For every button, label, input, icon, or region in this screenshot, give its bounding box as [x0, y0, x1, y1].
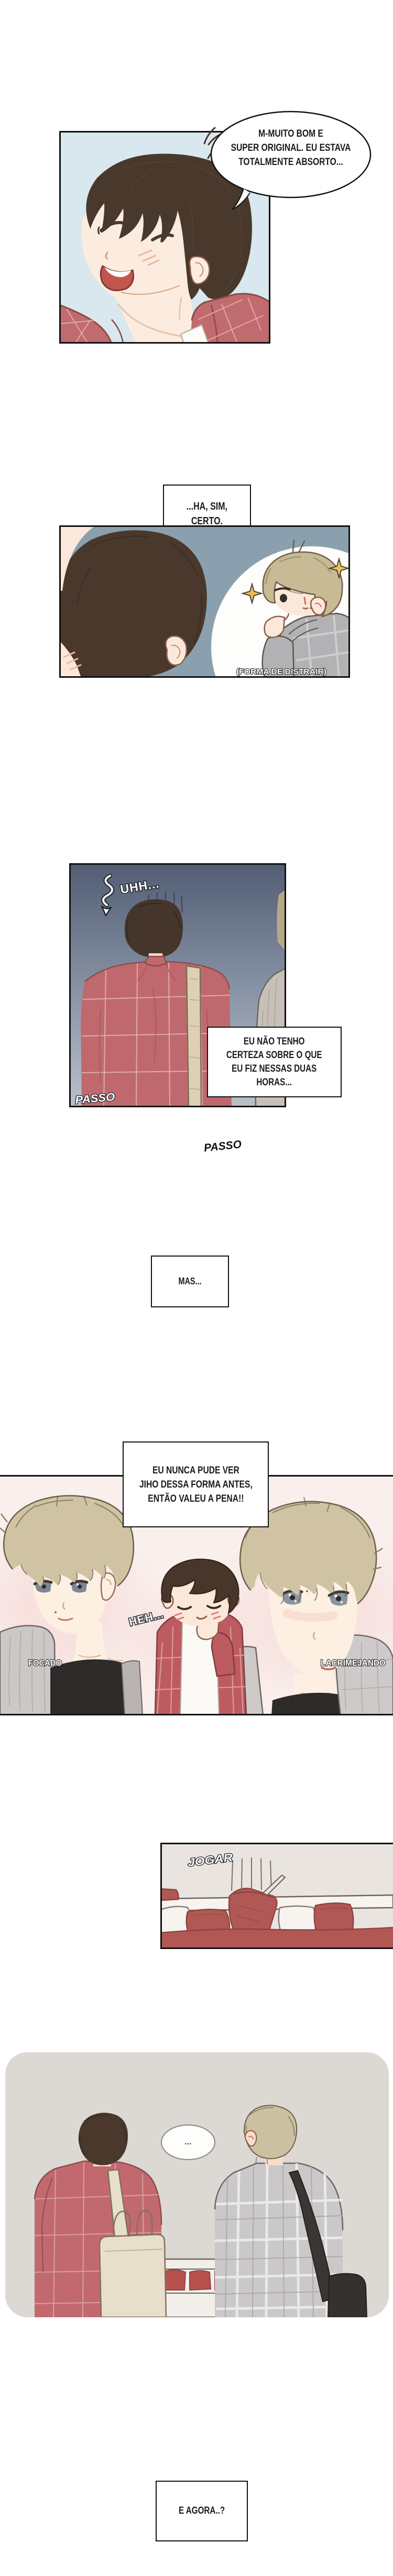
svg-text:...: ...	[184, 2138, 191, 2146]
svg-text:LACRIMEJANDO: LACRIMEJANDO	[321, 1659, 386, 1668]
svg-text:(FORMA DE DISTRAIR): (FORMA DE DISTRAIR)	[236, 667, 326, 676]
svg-text:FOCADO: FOCADO	[28, 1659, 62, 1668]
